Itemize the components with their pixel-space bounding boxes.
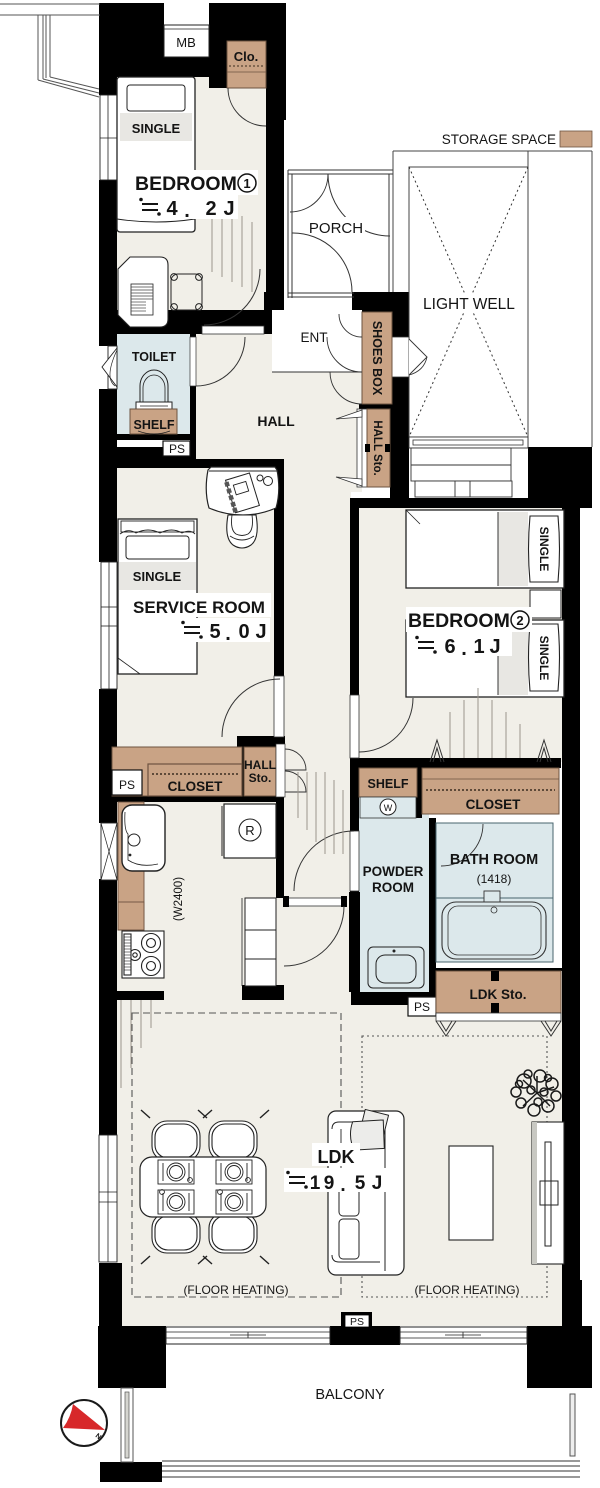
svg-text:BEDROOM: BEDROOM bbox=[135, 173, 237, 195]
svg-text:(FLOOR HEATING): (FLOOR HEATING) bbox=[183, 1283, 288, 1297]
svg-text:2: 2 bbox=[516, 613, 523, 628]
svg-text:ROOM: ROOM bbox=[372, 880, 414, 895]
svg-text:HALL Sto.: HALL Sto. bbox=[371, 420, 383, 475]
svg-text:1: 1 bbox=[243, 176, 250, 191]
svg-text:LIGHT WELL: LIGHT WELL bbox=[423, 296, 515, 313]
svg-text:.: . bbox=[225, 623, 231, 645]
svg-text:1: 1 bbox=[473, 636, 484, 658]
svg-text:STORAGE SPACE: STORAGE SPACE bbox=[442, 132, 556, 147]
svg-text:LDK: LDK bbox=[318, 1147, 355, 1167]
svg-text:PS: PS bbox=[169, 442, 185, 456]
svg-text:J: J bbox=[372, 1173, 383, 1194]
svg-text:6: 6 bbox=[444, 636, 455, 658]
svg-text:BALCONY: BALCONY bbox=[315, 1387, 385, 1403]
svg-text:CLOSET: CLOSET bbox=[168, 779, 224, 794]
svg-text:(W2400): (W2400) bbox=[173, 877, 185, 921]
svg-text:PORCH: PORCH bbox=[309, 220, 363, 237]
svg-text:SHELF: SHELF bbox=[134, 418, 175, 432]
svg-text:9: 9 bbox=[324, 1173, 335, 1194]
svg-text:4: 4 bbox=[166, 198, 178, 220]
svg-text:R: R bbox=[245, 823, 254, 838]
svg-text:MB: MB bbox=[176, 35, 196, 50]
svg-text:BEDROOM: BEDROOM bbox=[408, 610, 510, 632]
svg-text:TOILET: TOILET bbox=[132, 350, 177, 364]
svg-text:2: 2 bbox=[205, 198, 216, 220]
svg-text:W: W bbox=[384, 803, 393, 813]
svg-text:5: 5 bbox=[355, 1173, 366, 1194]
svg-text:CLOSET: CLOSET bbox=[466, 797, 522, 812]
svg-text:HALL: HALL bbox=[257, 413, 295, 429]
svg-text:PS: PS bbox=[119, 778, 135, 792]
svg-text:SHOES BOX: SHOES BOX bbox=[370, 321, 384, 396]
svg-text:0: 0 bbox=[238, 621, 249, 643]
svg-text:SINGLE: SINGLE bbox=[537, 636, 551, 681]
svg-text:.: . bbox=[340, 1175, 345, 1196]
svg-text:SINGLE: SINGLE bbox=[133, 569, 182, 584]
svg-text:Sto.: Sto. bbox=[249, 771, 272, 785]
svg-text:J: J bbox=[223, 198, 234, 220]
svg-text:J: J bbox=[489, 636, 500, 658]
svg-text:SINGLE: SINGLE bbox=[537, 527, 551, 572]
svg-text:HALL: HALL bbox=[244, 758, 276, 772]
svg-text:POWDER: POWDER bbox=[363, 864, 424, 879]
svg-text:Clo.: Clo. bbox=[234, 49, 259, 64]
svg-text:PS: PS bbox=[414, 1000, 430, 1014]
svg-text:SERVICE ROOM: SERVICE ROOM bbox=[133, 598, 265, 617]
svg-text:SHELF: SHELF bbox=[368, 777, 409, 791]
svg-text:.: . bbox=[184, 200, 190, 222]
svg-text:ENT: ENT bbox=[301, 330, 328, 345]
svg-text:SINGLE: SINGLE bbox=[132, 121, 181, 136]
svg-text:(FLOOR HEATING): (FLOOR HEATING) bbox=[414, 1283, 519, 1297]
svg-text:5: 5 bbox=[209, 621, 220, 643]
svg-text:1: 1 bbox=[310, 1173, 321, 1194]
svg-text:LDK Sto.: LDK Sto. bbox=[470, 987, 527, 1002]
svg-text:J: J bbox=[255, 621, 266, 643]
svg-text:.: . bbox=[461, 638, 467, 660]
svg-text:PS: PS bbox=[350, 1316, 364, 1328]
svg-text:BATH ROOM: BATH ROOM bbox=[450, 852, 538, 868]
svg-text:(1418): (1418) bbox=[477, 872, 512, 886]
